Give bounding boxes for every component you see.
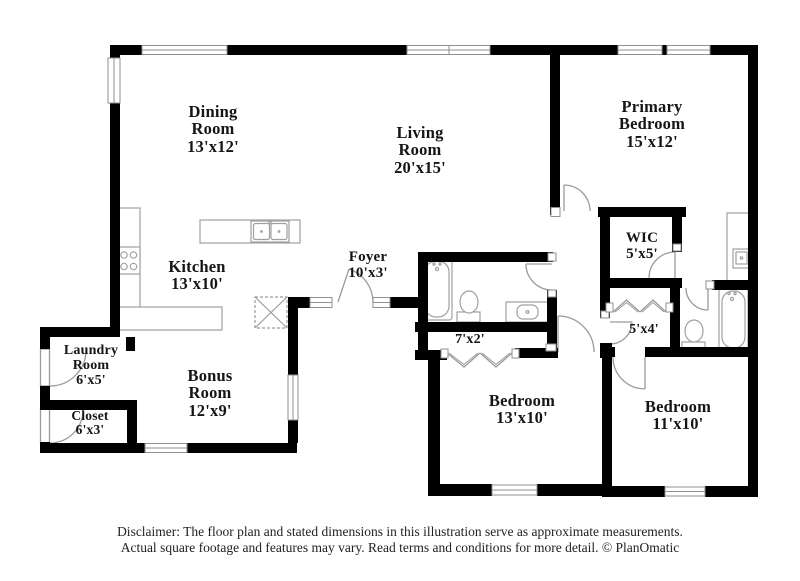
room-label-dining-room: Dining Room 13'x12' bbox=[176, 103, 250, 155]
window bbox=[667, 46, 710, 55]
stove-icon bbox=[117, 247, 140, 274]
window bbox=[145, 444, 187, 453]
room-label-living-room: Living Room 20'x15' bbox=[383, 124, 457, 176]
room-label-bedroom-11x10: Bedroom 11'x10' bbox=[645, 398, 711, 433]
room-label-laundry-room: Laundry Room 6'x5' bbox=[51, 344, 131, 388]
window bbox=[665, 487, 705, 496]
floor-plan-page: Dining Room 13'x12' Living Room 20'x15' … bbox=[0, 0, 800, 581]
room-label-kitchen: Kitchen 13'x10' bbox=[168, 258, 225, 293]
room-label-closet: Closet 6'x3' bbox=[71, 409, 108, 438]
bathtub-icon bbox=[719, 287, 748, 352]
floor-plan-drawing bbox=[0, 0, 800, 581]
room-label-wic: WIC 5'x5' bbox=[626, 231, 658, 263]
room-label-primary-bedroom: Primary Bedroom 15'x12' bbox=[604, 98, 700, 150]
door-swing-icon bbox=[613, 357, 645, 389]
window bbox=[108, 58, 120, 103]
disclaimer: Disclaimer: The floor plan and stated di… bbox=[0, 524, 800, 556]
toilet-icon bbox=[457, 291, 480, 322]
attic-access-icon bbox=[255, 297, 287, 328]
bifold-door-icon bbox=[447, 353, 512, 367]
kitchen-island-icon bbox=[200, 220, 300, 243]
door-swing-icon bbox=[526, 264, 552, 290]
room-label-foyer: Foyer 10'x3' bbox=[348, 250, 388, 282]
kitchen-counter bbox=[118, 307, 222, 330]
room-label-bedroom-13x10: Bedroom 13'x10' bbox=[489, 392, 555, 427]
door-swing-icon bbox=[558, 316, 594, 352]
sink-icon bbox=[506, 302, 552, 322]
window bbox=[142, 46, 227, 55]
window bbox=[407, 46, 490, 55]
disclaimer-line-1: Disclaimer: The floor plan and stated di… bbox=[0, 524, 800, 540]
window bbox=[288, 375, 298, 420]
room-label-bonus-room: Bonus Room 12'x9' bbox=[173, 367, 247, 419]
sink-icon bbox=[727, 213, 750, 288]
window bbox=[373, 298, 390, 308]
door-swing-icon bbox=[686, 288, 708, 310]
disclaimer-line-2: Actual square footage and features may v… bbox=[0, 540, 800, 556]
window bbox=[310, 298, 332, 308]
window bbox=[618, 46, 662, 55]
room-label-closet-7x2: 7'x2' bbox=[455, 333, 485, 348]
room-label-closet-5x4: 5'x4' bbox=[629, 323, 659, 338]
door-swing-icon bbox=[564, 185, 590, 211]
bifold-door-icon bbox=[613, 300, 666, 312]
window bbox=[492, 485, 537, 495]
